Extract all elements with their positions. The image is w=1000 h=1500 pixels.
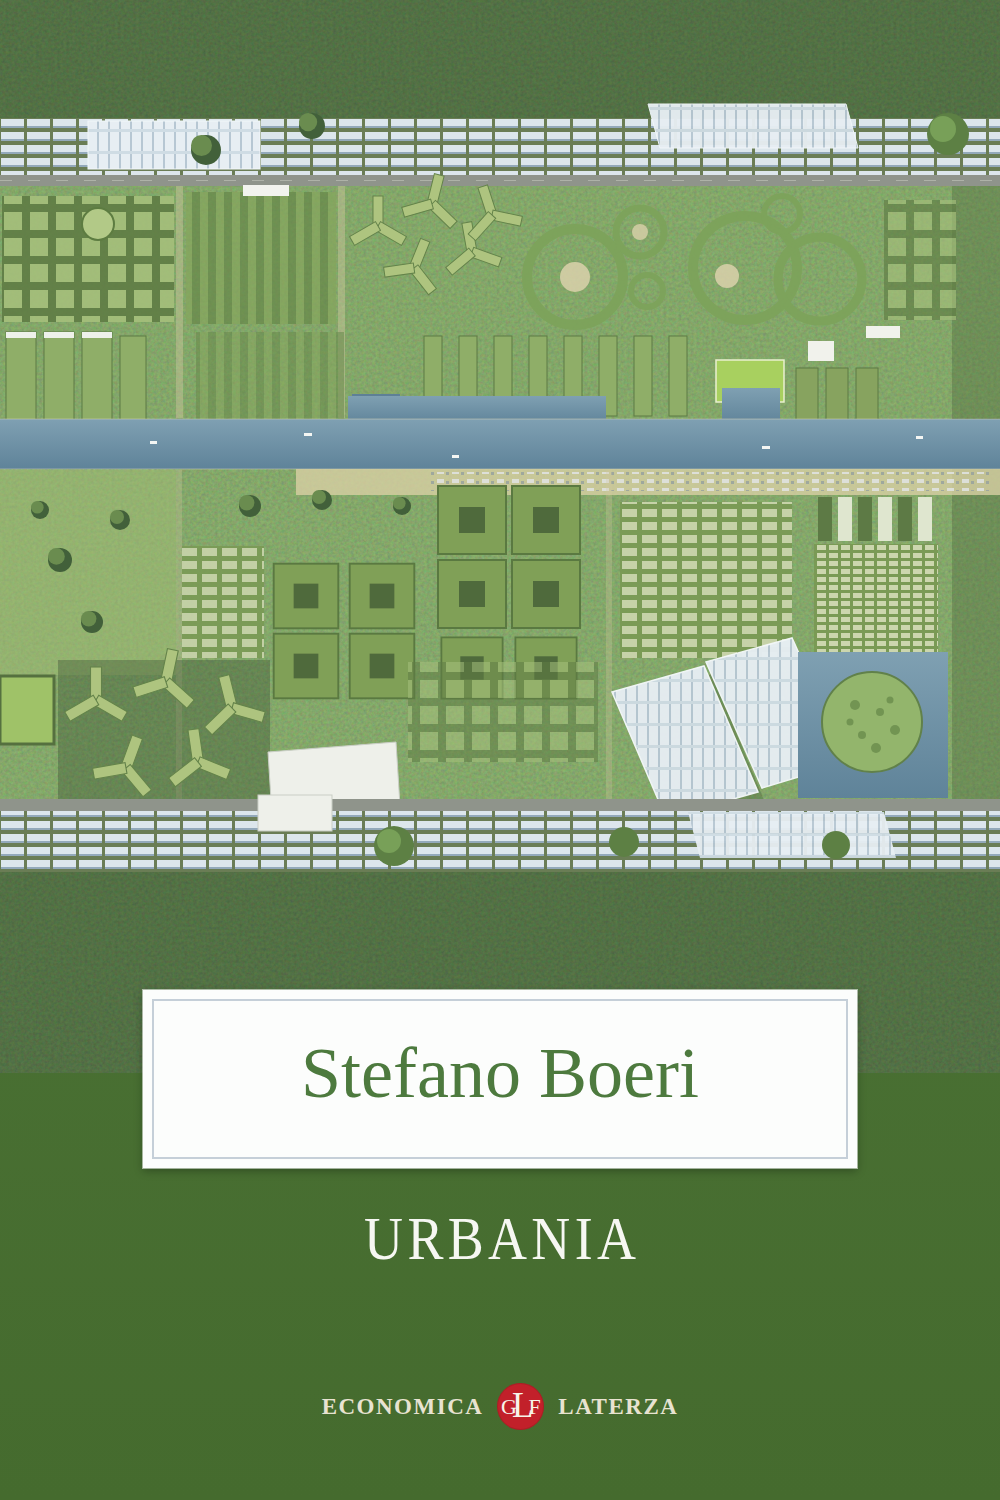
publisher-logo: ECONOMICA G L F LATERZA xyxy=(0,1383,1000,1430)
author-box: Stefano Boeri xyxy=(143,990,857,1168)
glf-monogram-icon: G L F xyxy=(497,1383,544,1430)
pond-island xyxy=(798,652,948,798)
aerial-photo xyxy=(0,0,1000,1073)
book-title: URBANIA xyxy=(65,1207,935,1269)
solar-band-bottom xyxy=(0,795,1000,872)
aerial-city-render xyxy=(0,0,1000,1073)
monogram-letter-l: L xyxy=(512,1388,533,1423)
author-name: Stefano Boeri xyxy=(301,1032,699,1115)
book-cover: Stefano Boeri URBANIA ECONOMICA G L F LA… xyxy=(0,0,1000,1500)
publisher-imprint: LATERZA xyxy=(558,1394,678,1420)
publisher-series: ECONOMICA xyxy=(322,1394,484,1420)
